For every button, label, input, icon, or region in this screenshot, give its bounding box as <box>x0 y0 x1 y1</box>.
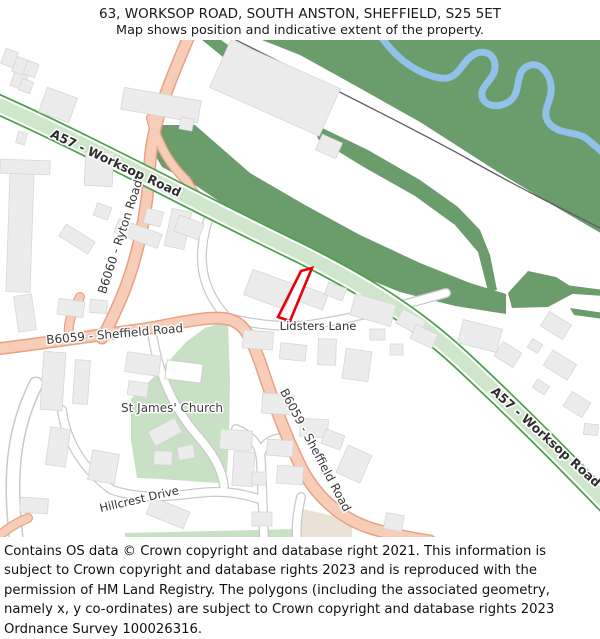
building-footprint <box>244 269 295 309</box>
building-footprint <box>276 465 303 485</box>
building-footprint <box>279 343 307 362</box>
building-footprint <box>219 429 252 451</box>
building-footprint <box>59 224 95 254</box>
building-footprint <box>543 350 576 380</box>
building-footprint <box>154 451 172 466</box>
building-footprint <box>88 450 120 484</box>
copyright-notice: Contains OS data © Crown copyright and d… <box>0 537 600 639</box>
road-label-lidsters-lane: Lidsters Lane <box>280 319 357 333</box>
building-footprint <box>321 429 345 450</box>
building-footprint <box>177 445 195 461</box>
building-footprint <box>90 299 108 313</box>
map-header: 63, WORKSOP ROAD, SOUTH ANSTON, SHEFFIEL… <box>0 0 600 40</box>
church-building <box>165 360 203 383</box>
building-footprint <box>127 381 149 398</box>
building-footprint <box>336 445 372 483</box>
building-footprint <box>532 379 549 395</box>
building-footprint <box>563 391 591 417</box>
building-footprint <box>93 203 112 220</box>
property-address-title: 63, WORKSOP ROAD, SOUTH ANSTON, SHEFFIEL… <box>0 0 600 22</box>
grass-strip-bottom <box>125 529 300 537</box>
building-footprint <box>14 294 37 332</box>
building-footprint <box>370 329 385 340</box>
building-footprint <box>40 351 66 410</box>
building-footprint <box>0 159 50 175</box>
map-canvas: A57 - Worksop Road A57 - Worksop Road B6… <box>0 40 600 537</box>
building-footprint <box>20 497 49 514</box>
map-caption: Map shows position and indicative extent… <box>0 22 600 39</box>
building-footprint <box>527 339 542 354</box>
building-footprint <box>6 172 34 293</box>
building-footprint <box>16 131 28 145</box>
building-footprint <box>242 330 273 350</box>
building-footprint <box>252 512 272 526</box>
building-footprint <box>72 360 90 405</box>
building-footprint <box>342 348 372 381</box>
building-footprint <box>179 117 194 131</box>
building-footprint <box>384 513 405 532</box>
building-footprint <box>125 352 161 377</box>
building-footprint <box>266 439 293 457</box>
building-footprint <box>458 320 503 353</box>
building-footprint <box>318 339 337 366</box>
building-footprint <box>390 344 403 355</box>
building-footprint <box>45 427 70 467</box>
map-svg: A57 - Worksop Road A57 - Worksop Road B6… <box>0 40 600 537</box>
building-footprint <box>57 298 85 317</box>
building-footprint <box>540 311 571 339</box>
map-labels: A57 - Worksop Road A57 - Worksop Road B6… <box>46 126 600 515</box>
building-footprint <box>252 472 266 485</box>
building-footprint <box>583 423 598 435</box>
poi-label-st-james-church: St James' Church <box>121 401 223 415</box>
